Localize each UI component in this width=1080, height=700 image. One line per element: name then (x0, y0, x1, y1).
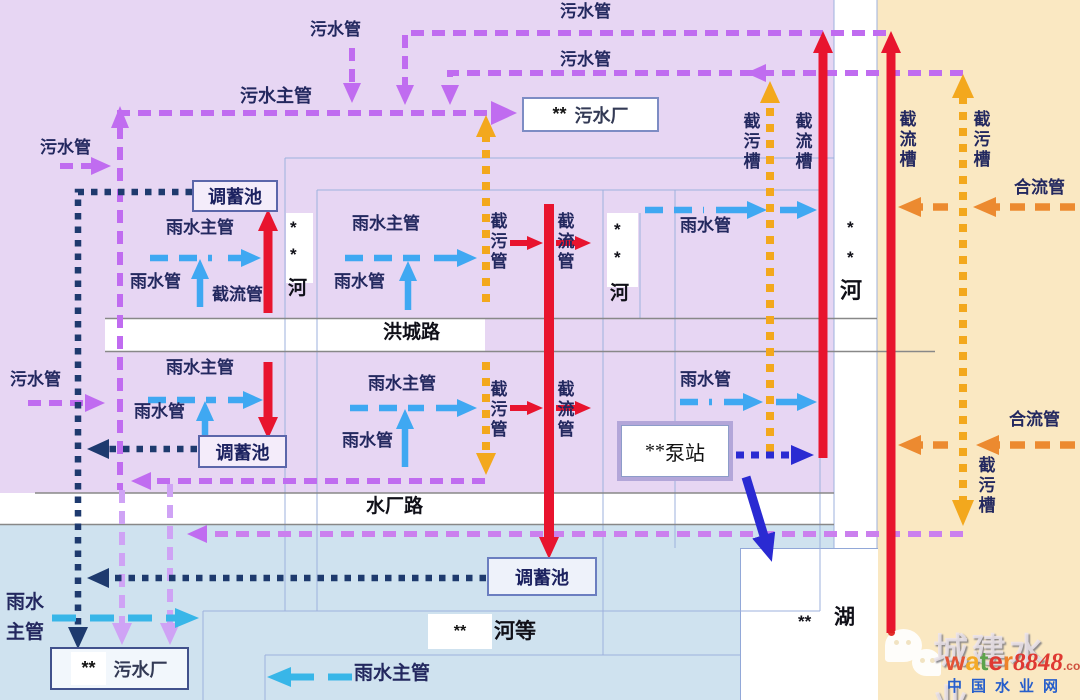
rain-pipe-label-r1l: 雨水管 (130, 272, 181, 292)
main-river-star2: * (847, 248, 854, 268)
shuichang-road-label: 水厂路 (366, 496, 423, 518)
wm-letter-w: w (945, 646, 965, 676)
sewage-pipe-top1 (405, 33, 886, 86)
sewage-up-arrowhead (111, 106, 129, 128)
sewage-plant-bottom-masked: ** (71, 652, 105, 685)
drainage-system-diagram: 调蓄池 调蓄池 调蓄池 ** 污水厂 ** 污水厂 **泵站 污水管 污水管 污… (0, 0, 1080, 700)
storage-tank-3-label: 调蓄池 (515, 564, 569, 590)
rain-main-bottom-center-label: 雨水主管 (354, 663, 430, 685)
watermark: 城建水业 water8848.com 中国水业网 (883, 613, 1080, 700)
sewage-pipe-label-top1: 污水管 (560, 2, 611, 22)
sewage-plant-bottom: ** 污水厂 (50, 647, 189, 690)
pump-station-label: 泵站 (665, 437, 705, 466)
intercept-channel-label-bottom-right: 截污槽 (975, 456, 995, 516)
intercept-channel-label-right: 截污槽 (970, 110, 990, 170)
sewage-plant-top: ** 污水厂 (522, 97, 659, 132)
hongcheng-road-label: 洪城路 (383, 322, 440, 344)
rain-pipe-label-r1r: 雨水管 (680, 216, 731, 236)
rain-pipe-label-r2c: 雨水管 (342, 431, 393, 451)
diversion-channel-label-left: 截流槽 (792, 112, 812, 172)
storage-tank-2: 调蓄池 (198, 435, 287, 468)
sewage-plant-top-label: 污水厂 (575, 102, 629, 128)
sewage-pipe-top2 (450, 73, 963, 86)
rain-main-label-r1c: 雨水主管 (352, 214, 420, 234)
main-river-label: 河 (840, 278, 862, 303)
storage-tank-1: 调蓄池 (192, 180, 278, 212)
rain-pipe-label-r1c: 雨水管 (334, 272, 385, 292)
rain-pipe-label-r2l: 雨水管 (134, 402, 185, 422)
river1-star2: * (290, 245, 297, 265)
rivers-etc-masked: ** (454, 623, 466, 641)
diversion-pipe-label-r2c: 截流管 (554, 380, 574, 440)
intercept-pipe-label-r1c: 截污管 (487, 212, 507, 272)
sewage-mid-left-arrowhead (746, 64, 766, 82)
river2-star2: * (614, 248, 621, 268)
rain-main-label-r2l: 雨水主管 (166, 358, 234, 378)
sewage-plant-bottom-label: 污水厂 (114, 656, 168, 682)
combined-pipe-label-bottom: 合流管 (1009, 410, 1060, 430)
river2-label: 河 (610, 283, 629, 305)
intercept-right-down-arrowhead (952, 500, 974, 526)
storage-tank-2-label: 调蓄池 (216, 439, 270, 465)
sewage-pipe-label-left2: 污水管 (10, 370, 61, 390)
storage-tank-1-label: 调蓄池 (208, 183, 262, 209)
lake-label: 湖 (834, 606, 855, 630)
watermark-site-name: 中国水业网 (947, 675, 1067, 696)
sewage-pipe-label-left1: 污水管 (40, 138, 91, 158)
rivers-etc-masked-patch: ** (428, 614, 492, 649)
sewage-plant-top-masked: ** (552, 104, 566, 125)
rain-main-bottom-left-label-line2: 主管 (6, 622, 44, 644)
lake-masked: ** (798, 612, 811, 632)
sewage-pipe-label-mid: 污水管 (310, 20, 361, 40)
diversion-pipe-label-r1l: 截流管 (212, 285, 263, 305)
wm-number: 8848 (1013, 649, 1063, 676)
intercept-channel-label-left: 截污槽 (740, 112, 760, 172)
pump-to-lake-arrow (746, 477, 764, 536)
river1-label: 河 (288, 278, 307, 300)
watermark-water8848: water8848.com (945, 646, 1080, 677)
rain-main-label-r2c: 雨水主管 (368, 374, 436, 394)
rain-pipe-label-r2r: 雨水管 (680, 370, 731, 390)
combined-pipe-label-top: 合流管 (1014, 178, 1065, 198)
rain-main-label-r1l: 雨水主管 (166, 218, 234, 238)
wm-domain: .com (1063, 659, 1080, 673)
wm-letter-e: e (988, 646, 1002, 676)
storage-tank-3: 调蓄池 (487, 557, 597, 596)
pump-station: **泵站 (617, 421, 733, 481)
river2-star1: * (614, 220, 621, 240)
main-river-star1: * (847, 218, 854, 238)
wm-letter-r: r (1003, 646, 1013, 676)
sewage-pipe-label-top2: 污水管 (560, 50, 611, 70)
intercept-pipe-label-r2c: 截污管 (487, 380, 507, 440)
rain-main-bottom-left-label-line1: 雨水 (6, 592, 44, 614)
diversion-pipe-label-r1c: 截流管 (554, 212, 574, 272)
rivers-etc-label: 河等 (494, 620, 536, 644)
river1-star1: * (290, 218, 297, 238)
wm-letter-a: a (965, 646, 979, 676)
diversion-channel-label-right: 截流槽 (896, 110, 916, 170)
sewage-main-label: 污水主管 (240, 86, 312, 107)
pump-station-masked: ** (645, 440, 665, 463)
intercept-right-up-arrowhead (952, 74, 974, 98)
